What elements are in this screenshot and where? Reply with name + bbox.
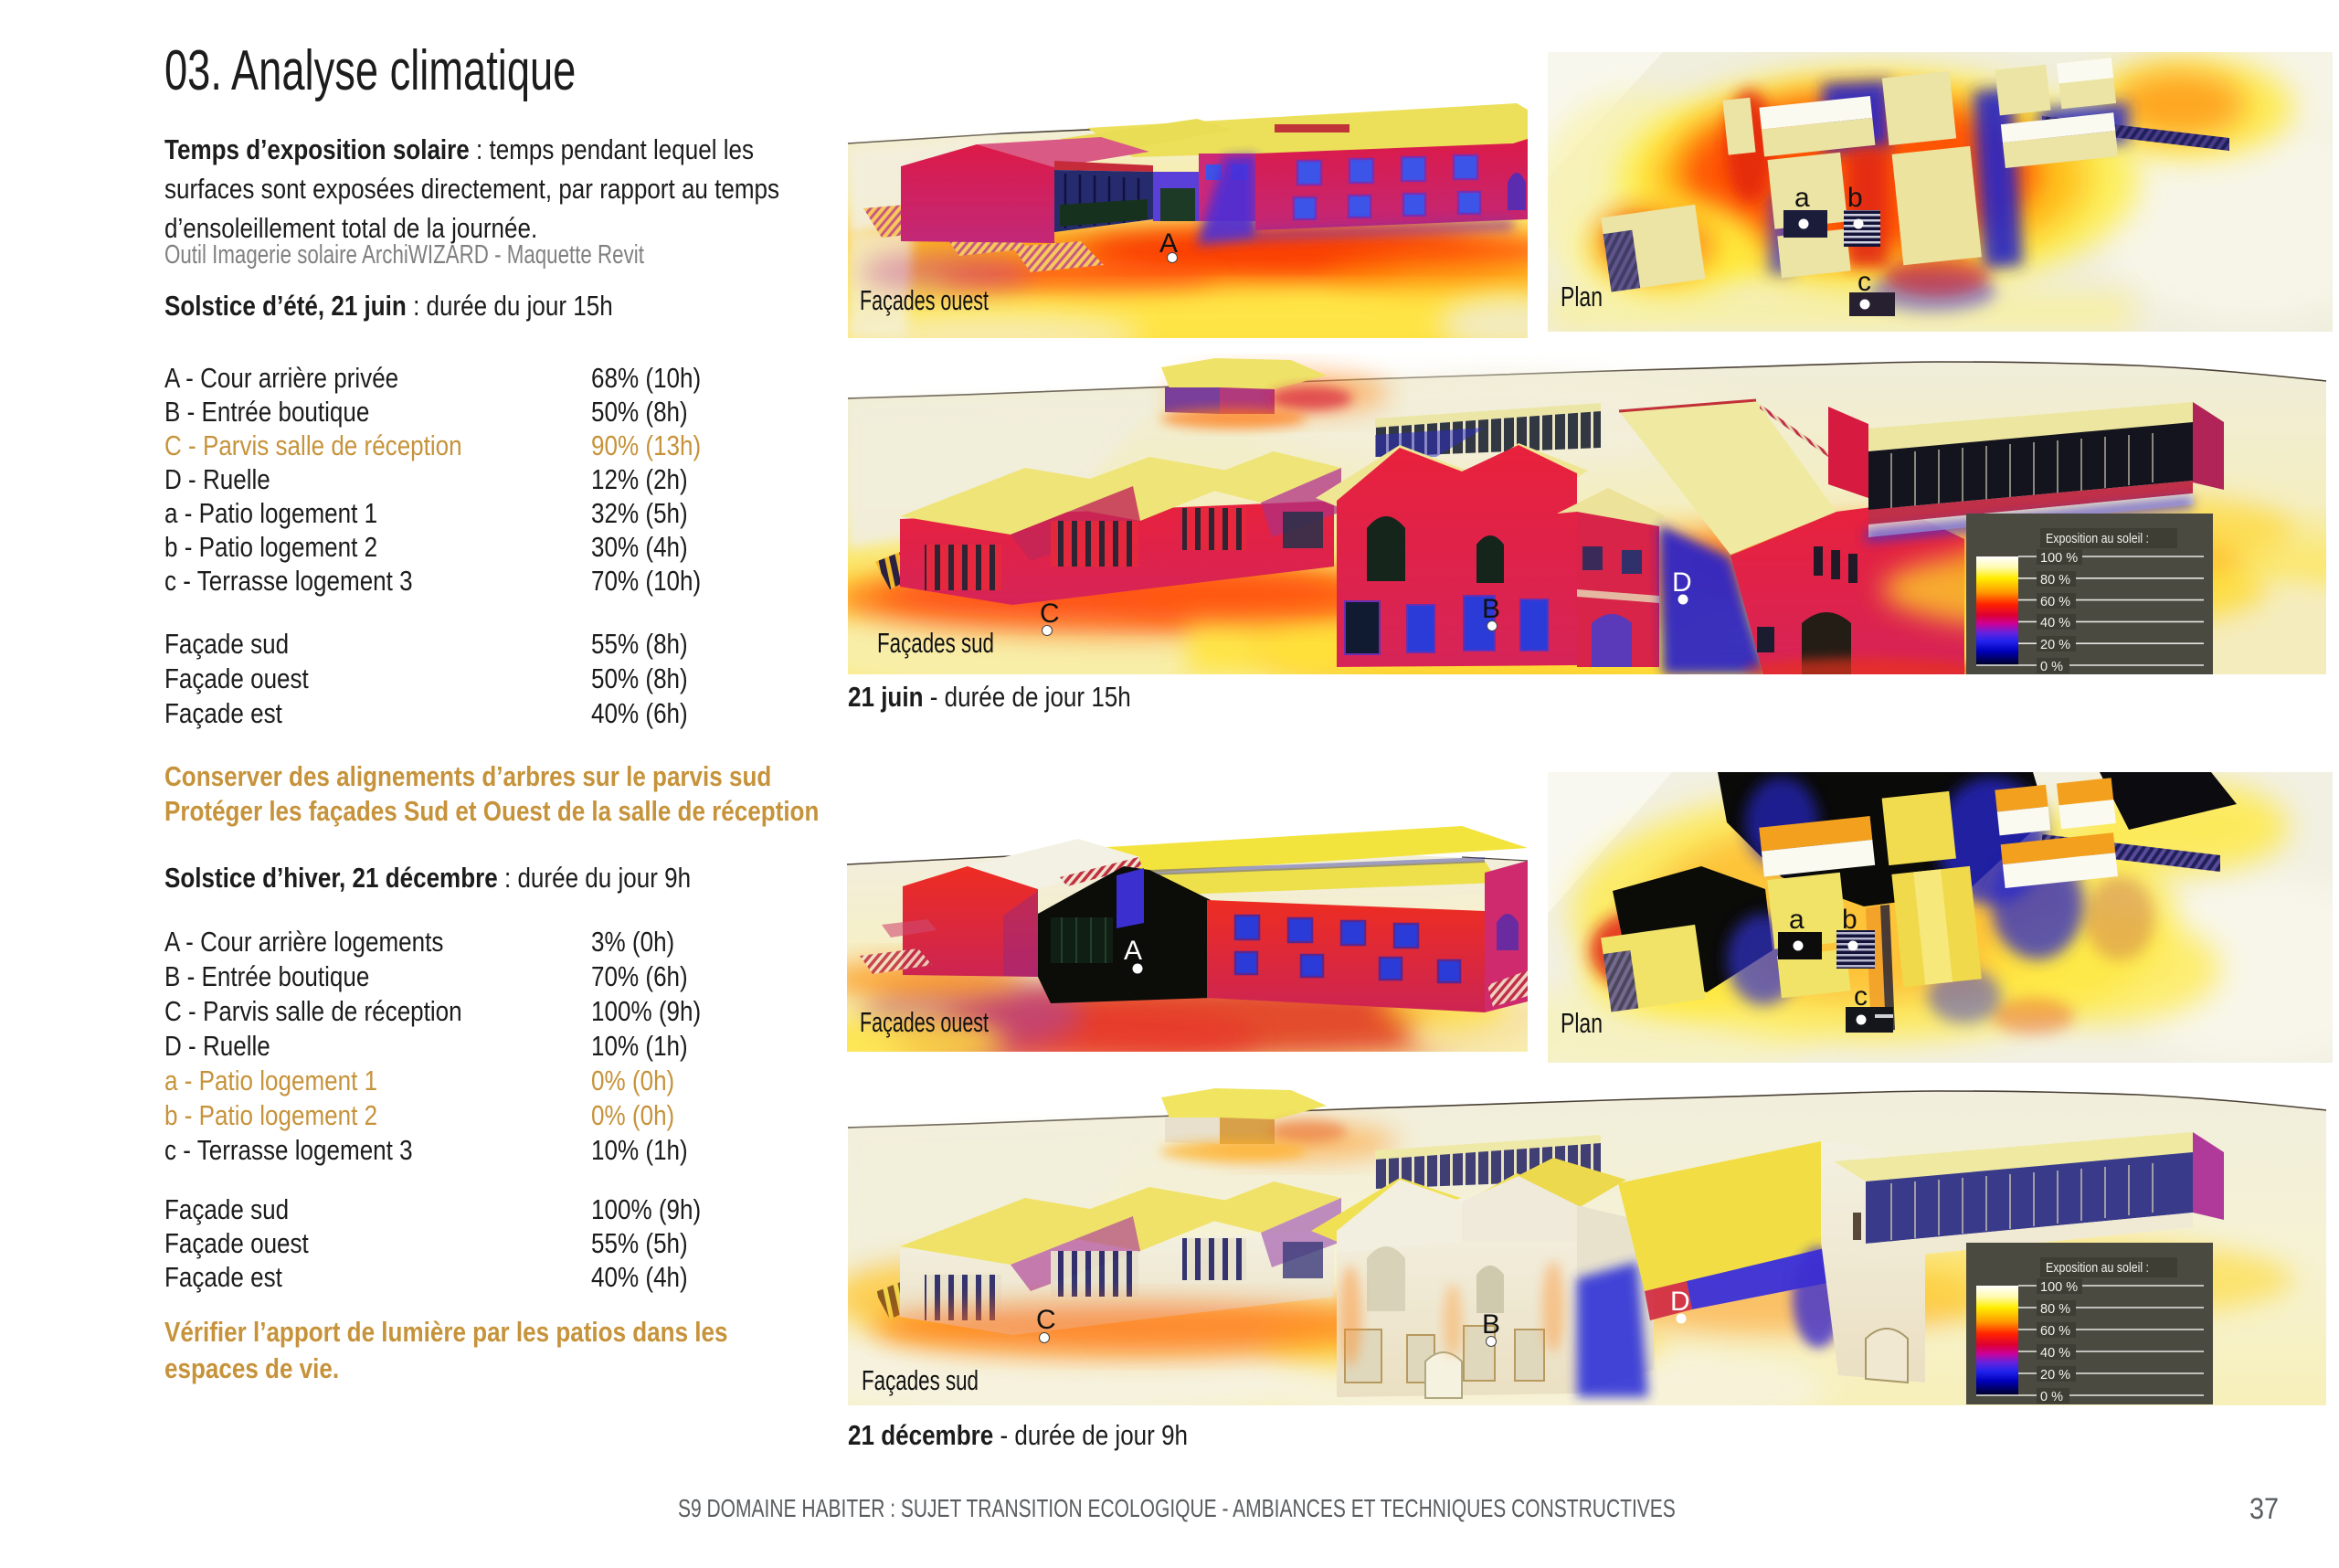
svg-text:Exposition au soleil :: Exposition au soleil : <box>2046 531 2149 546</box>
svg-text:Plan: Plan <box>1561 1007 1603 1039</box>
svg-text:A: A <box>1124 936 1142 966</box>
svg-text:0 %: 0 % <box>2040 660 2063 674</box>
svg-text:Façades ouest: Façades ouest <box>860 1006 989 1038</box>
svg-text:b: b <box>1842 905 1857 935</box>
svg-text:80 %: 80 % <box>2040 573 2070 588</box>
svg-text:40 %: 40 % <box>2040 1346 2070 1361</box>
svg-text:0 %: 0 % <box>2040 1390 2063 1404</box>
svg-text:80 %: 80 % <box>2040 1302 2070 1317</box>
svg-text:100 %: 100 % <box>2040 1280 2078 1295</box>
svg-text:b: b <box>1847 183 1863 213</box>
svg-text:20 %: 20 % <box>2040 1368 2070 1383</box>
svg-text:60 %: 60 % <box>2040 595 2070 609</box>
svg-text:Exposition au soleil :: Exposition au soleil : <box>2046 1260 2149 1276</box>
svg-text:B: B <box>1482 1309 1500 1340</box>
svg-text:c: c <box>1857 267 1871 297</box>
svg-text:20 %: 20 % <box>2040 638 2070 652</box>
svg-text:Plan: Plan <box>1561 281 1603 313</box>
svg-text:C: C <box>1036 1305 1056 1335</box>
svg-text:60 %: 60 % <box>2040 1324 2070 1339</box>
svg-text:C: C <box>1040 599 1060 629</box>
svg-text:a: a <box>1789 905 1805 935</box>
svg-text:100 %: 100 % <box>2040 551 2078 566</box>
svg-text:a: a <box>1794 183 1810 213</box>
svg-text:c: c <box>1854 981 1868 1012</box>
svg-text:D: D <box>1672 567 1692 598</box>
svg-text:D: D <box>1670 1287 1690 1317</box>
svg-text:40 %: 40 % <box>2040 616 2070 630</box>
svg-text:B: B <box>1482 594 1500 624</box>
svg-text:Façades sud: Façades sud <box>877 627 994 659</box>
svg-text:Façades ouest: Façades ouest <box>860 284 989 316</box>
svg-text:Façades sud: Façades sud <box>862 1364 979 1396</box>
